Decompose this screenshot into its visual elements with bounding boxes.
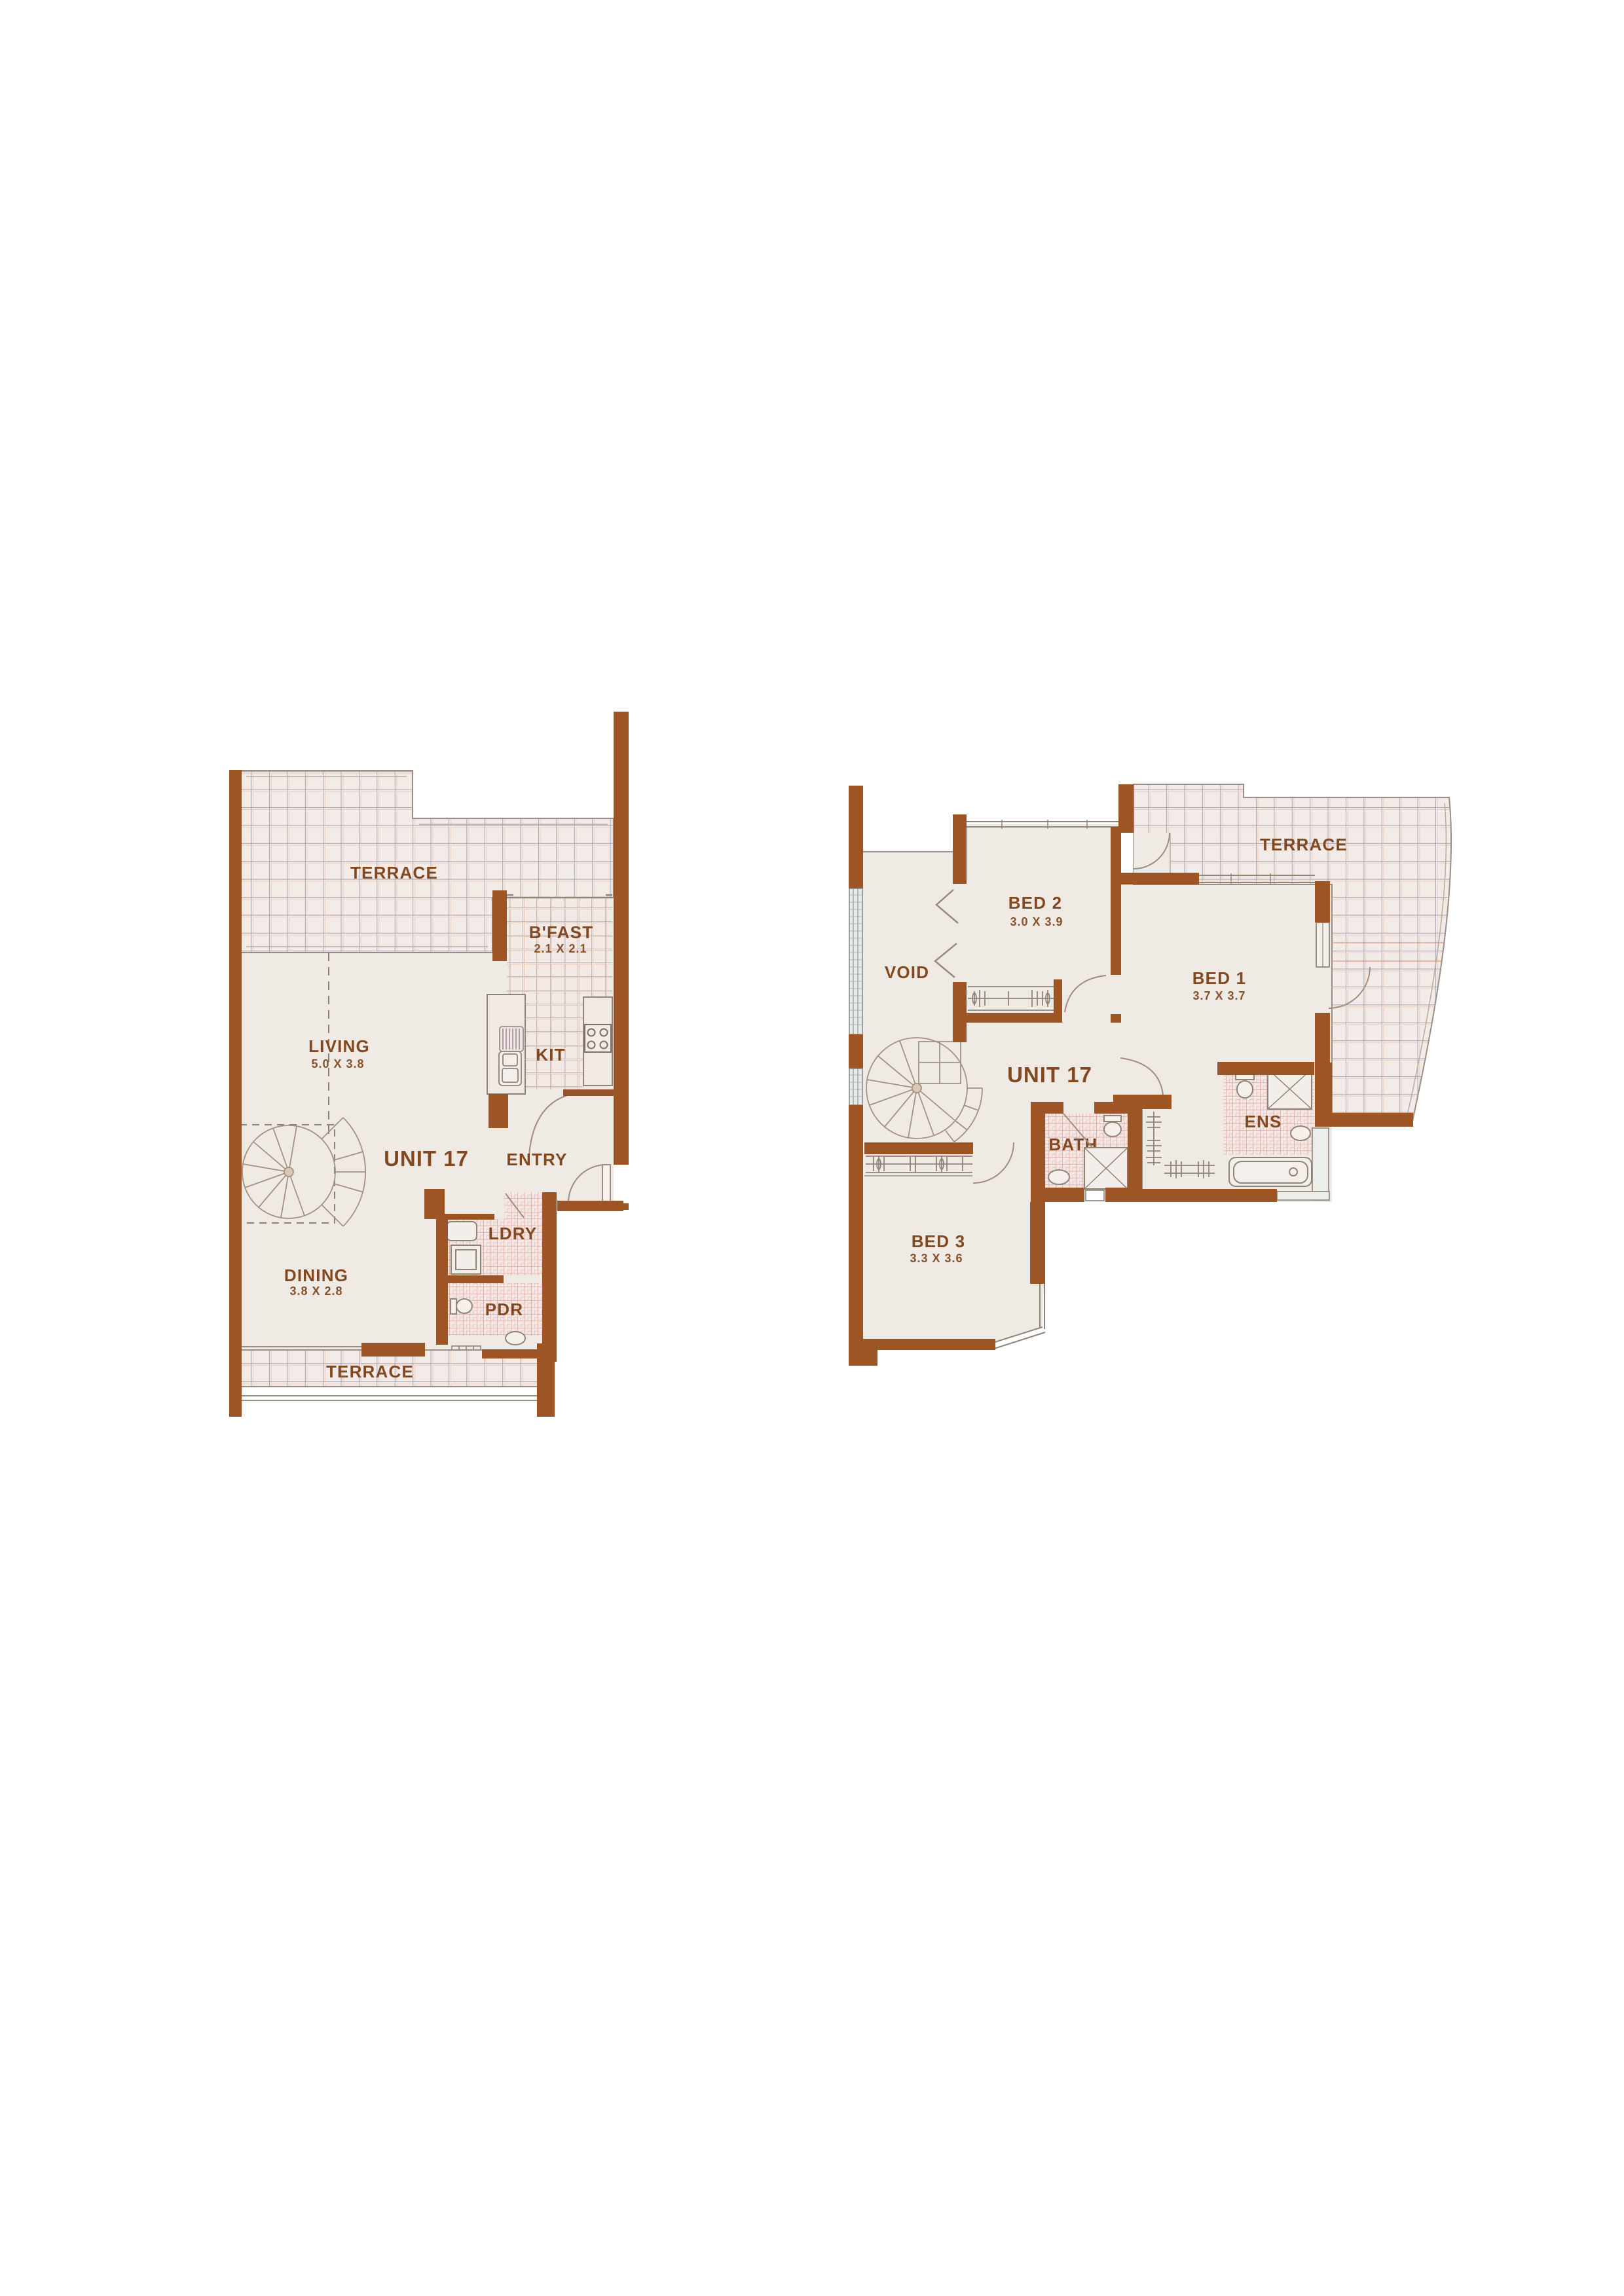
svg-text:VOID: VOID: [885, 962, 929, 982]
svg-text:UNIT 17: UNIT 17: [384, 1146, 469, 1171]
svg-text:DINING: DINING: [284, 1266, 348, 1285]
svg-text:PDR: PDR: [485, 1300, 524, 1319]
svg-text:3.7 X 3.7: 3.7 X 3.7: [1192, 989, 1246, 1002]
svg-text:B'FAST: B'FAST: [529, 922, 594, 942]
svg-text:3.3 X 3.6: 3.3 X 3.6: [910, 1252, 963, 1265]
svg-text:TERRACE: TERRACE: [326, 1362, 414, 1381]
svg-text:3.0 X 3.9: 3.0 X 3.9: [1010, 915, 1063, 928]
svg-text:2.1 X 2.1: 2.1 X 2.1: [534, 942, 587, 955]
svg-text:KIT: KIT: [536, 1045, 565, 1065]
svg-text:UNIT 17: UNIT 17: [1007, 1063, 1092, 1087]
svg-text:ENTRY: ENTRY: [506, 1150, 567, 1169]
svg-text:TERRACE: TERRACE: [350, 863, 438, 883]
svg-text:5.0 X 3.8: 5.0 X 3.8: [311, 1057, 364, 1070]
svg-text:BED 3: BED 3: [912, 1231, 966, 1251]
svg-text:ENS: ENS: [1244, 1112, 1282, 1131]
svg-text:LDRY: LDRY: [489, 1224, 538, 1243]
svg-text:LIVING: LIVING: [308, 1036, 370, 1056]
svg-text:BED 1: BED 1: [1192, 968, 1247, 988]
svg-text:TERRACE: TERRACE: [1260, 835, 1348, 854]
svg-text:3.8 X 2.8: 3.8 X 2.8: [289, 1285, 342, 1298]
svg-text:BED 2: BED 2: [1008, 893, 1063, 913]
